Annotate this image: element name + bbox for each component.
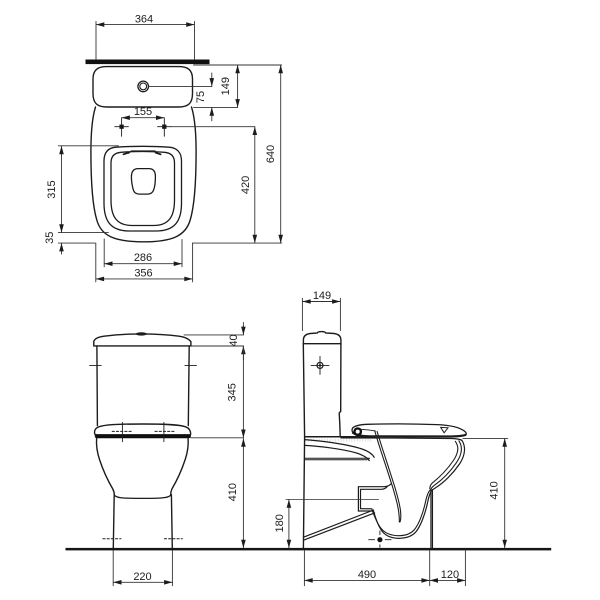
svg-text:364: 364 [135,13,153,25]
svg-text:420: 420 [240,176,252,194]
svg-text:149: 149 [313,290,331,302]
svg-text:155: 155 [134,106,152,118]
svg-text:640: 640 [265,145,277,163]
svg-text:345: 345 [227,383,239,401]
svg-text:410: 410 [227,483,239,501]
svg-text:120: 120 [441,569,459,581]
svg-text:180: 180 [274,514,286,532]
svg-text:40: 40 [228,334,240,346]
svg-text:75: 75 [195,91,207,103]
svg-text:490: 490 [358,569,376,581]
svg-text:315: 315 [46,180,58,198]
svg-text:286: 286 [134,252,152,264]
svg-text:220: 220 [133,571,151,583]
svg-text:35: 35 [44,232,56,244]
svg-text:410: 410 [489,481,501,499]
svg-text:356: 356 [134,267,152,279]
svg-text:149: 149 [220,77,232,95]
